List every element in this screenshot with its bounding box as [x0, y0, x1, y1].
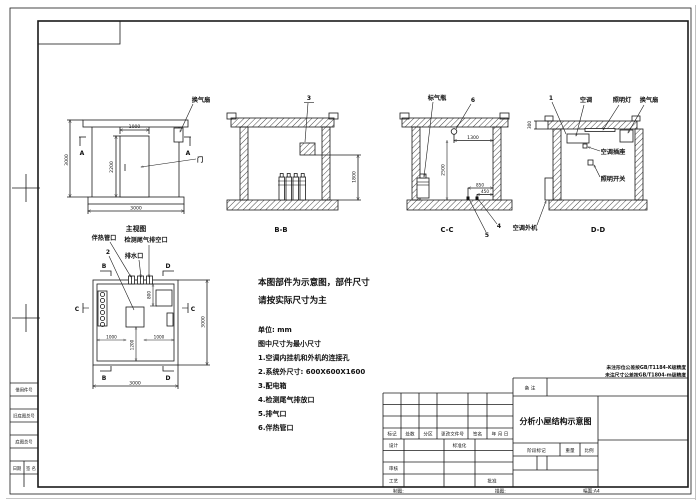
tracing-label: 描图: [495, 488, 506, 495]
front-view: 1000 2200 3000 3000 A A 换气扇 门 主视图 [64, 96, 210, 233]
dim-1200: 1200 [130, 339, 135, 350]
socket-label: 空调插座 [601, 148, 627, 156]
note-item-6: 6.伴热管口 [258, 423, 294, 432]
wall-hole [300, 143, 315, 155]
process-label: 工艺 [389, 479, 399, 485]
section-letter-d: D [166, 375, 171, 382]
socket-symbol [583, 144, 587, 148]
rev-header-count: 处数 [405, 431, 415, 438]
note-item-4: 4.检测尾气排放口 [258, 395, 315, 404]
system-cabinet [126, 307, 144, 327]
dim-1000-right: 1000 [154, 335, 165, 340]
roof-ports [129, 276, 153, 284]
sign-label: 签 名 [26, 465, 36, 472]
standardization-label: 标准化 [453, 442, 467, 449]
lamp-symbol [585, 129, 615, 132]
dim-1300: 1300 [467, 135, 479, 141]
gas-bottle-label: 标气瓶 [427, 94, 447, 102]
switch-label: 照明开关 [601, 175, 627, 183]
section-bb: 3 1800 B-B [227, 95, 361, 234]
dim-450: 450 [481, 189, 489, 194]
lamp-label: 照明灯 [613, 96, 632, 104]
centering-mark [12, 174, 40, 332]
rev-header-sign: 签名 [473, 431, 482, 438]
section-dd: 1 空调 照明灯 换气扇 300 空调插座 照明开关 D-D [527, 95, 658, 234]
dim-800: 800 [147, 291, 152, 299]
item-2-label: 2 [106, 249, 110, 256]
fan-label: 换气扇 [192, 96, 211, 104]
item-6-label: 6 [471, 97, 475, 104]
drawing-sheet: 1000 2200 3000 3000 A A 换气扇 门 主视图 [0, 0, 700, 501]
item-4-label: 4 [497, 223, 501, 230]
dim-850: 850 [476, 183, 484, 188]
note-headline-1: 本图部件为示意图，部件尺寸 [258, 276, 370, 288]
stage-mark-label: 阶段标记 [527, 447, 546, 454]
borrowed-part-label: 借用件号 [15, 387, 32, 394]
left-margin-block: 借用件号 旧底图总号 底图总号 日期 签 名 [10, 383, 38, 487]
master-no-label: 底图总号 [15, 439, 32, 446]
sheet-size-label: 幅面:A4 [583, 488, 600, 495]
approve-label: 批准 [487, 478, 497, 485]
note-min-size: 图中尺寸为最小尺寸 [258, 339, 321, 348]
dim-300-g [534, 121, 548, 129]
item-5-label: 5 [485, 232, 489, 239]
drafting-label: 制图: [393, 488, 404, 495]
tolerance-note-2: 未注尺寸公差按GB/T1804-m级精度 [605, 372, 686, 379]
heat-pipe-port-label: 伴热管口 [91, 234, 117, 242]
note-item-3: 3.配电箱 [258, 381, 287, 390]
front-view-title: 主视图 [126, 224, 147, 233]
old-master-no-label: 旧底图总号 [13, 413, 34, 420]
drain-port-label: 排水口 [125, 252, 144, 260]
dim-1000-left: 1000 [106, 335, 117, 340]
fan-symbol [620, 130, 633, 142]
outdoor-unit-label: 空调外机 [513, 224, 539, 232]
date-label: 日期 [13, 466, 22, 472]
dim-450-g [477, 195, 493, 198]
section-letter-c: C [75, 306, 80, 313]
rev-header-file: 更改文件号 [441, 431, 464, 438]
exhaust-vent-label: 检测尾气排空口 [124, 236, 167, 244]
dim-2500: 2500 [441, 164, 447, 176]
rev-header-zone: 分区 [423, 431, 433, 438]
section-cc: 标气瓶 6 1300 2500 850 450 4 5 空调外机 C-C [400, 94, 546, 239]
note-item-5: 5.排气口 [258, 409, 287, 418]
door-label: 门 [197, 156, 203, 164]
fan-symbol [174, 128, 183, 142]
item-6-symbol [451, 129, 457, 135]
dim-3000-right: 3000 [201, 316, 207, 328]
design-label: 设计 [389, 442, 399, 449]
note-headline-2: 请按实际尺寸为主 [258, 294, 327, 306]
plan-view: 800 1000 1000 1200 3000 3000 B D C C B D… [75, 234, 210, 389]
cad-drawing: 1000 2200 3000 3000 A A 换气扇 门 主视图 [0, 0, 700, 501]
weight-label: 重量 [565, 447, 575, 454]
section-cc-title: C-C [441, 226, 454, 234]
ac-indoor-unit [567, 134, 589, 143]
switch-symbol [588, 160, 593, 165]
remark-label: 备 注 [525, 385, 536, 392]
note-item-1: 1.空调内挂机和外机的连接孔 [258, 353, 350, 362]
section-letter-b: B [102, 263, 107, 270]
section-letter-a: A [186, 150, 191, 157]
section-letter-d: D [166, 263, 171, 270]
dim-height [67, 120, 88, 197]
corner-room [156, 290, 172, 306]
gas-bottle [417, 174, 429, 198]
door-opening [167, 313, 173, 326]
dim-3000-bottom: 3000 [129, 381, 141, 387]
rev-header-mark: 标记 [387, 431, 397, 438]
scale-label: 比例 [584, 447, 594, 454]
dim-300: 300 [527, 121, 532, 129]
bottle-rack [98, 291, 107, 327]
drawing-title: 分析小屋结构示意图 [520, 416, 592, 426]
dim-1800: 1800 [352, 171, 358, 183]
tolerance-note-1: 未注形位公差按GB/T1184-K级精度 [606, 364, 686, 371]
ac-label: 空调 [580, 96, 592, 104]
title-block: 未注形位公差按GB/T1184-K级精度 未注尺寸公差按GB/T1804-m级精… [383, 364, 688, 495]
section-dd-title: D-D [591, 226, 606, 234]
dim-3000-left: 3000 [64, 154, 70, 166]
note-item-2: 2.系统外尺寸: 600X600X1600 [258, 367, 365, 376]
item-3-label: 3 [307, 95, 311, 102]
fan-label: 换气扇 [640, 96, 659, 104]
section-bb-title: B-B [274, 226, 287, 234]
dim-1000: 1000 [129, 124, 141, 130]
review-label: 审核 [389, 465, 399, 472]
section-letter-c: C [191, 306, 196, 313]
cylinder-rack [278, 174, 306, 201]
ac-outdoor-unit [545, 178, 553, 200]
note-unit: 单位: mm [258, 325, 292, 334]
item-1-label: 1 [549, 95, 553, 102]
notes-block: 本图部件为示意图，部件尺寸 请按实际尺寸为主 单位: mm 图中尺寸为最小尺寸 … [258, 276, 370, 432]
corner-box [38, 21, 120, 44]
dim-2200: 2200 [109, 161, 115, 173]
rev-header-date: 年 月 日 [492, 431, 509, 438]
section-letter-a: A [80, 150, 85, 157]
dim-3000-bottom: 3000 [130, 206, 142, 212]
section-letter-b: B [102, 375, 107, 382]
